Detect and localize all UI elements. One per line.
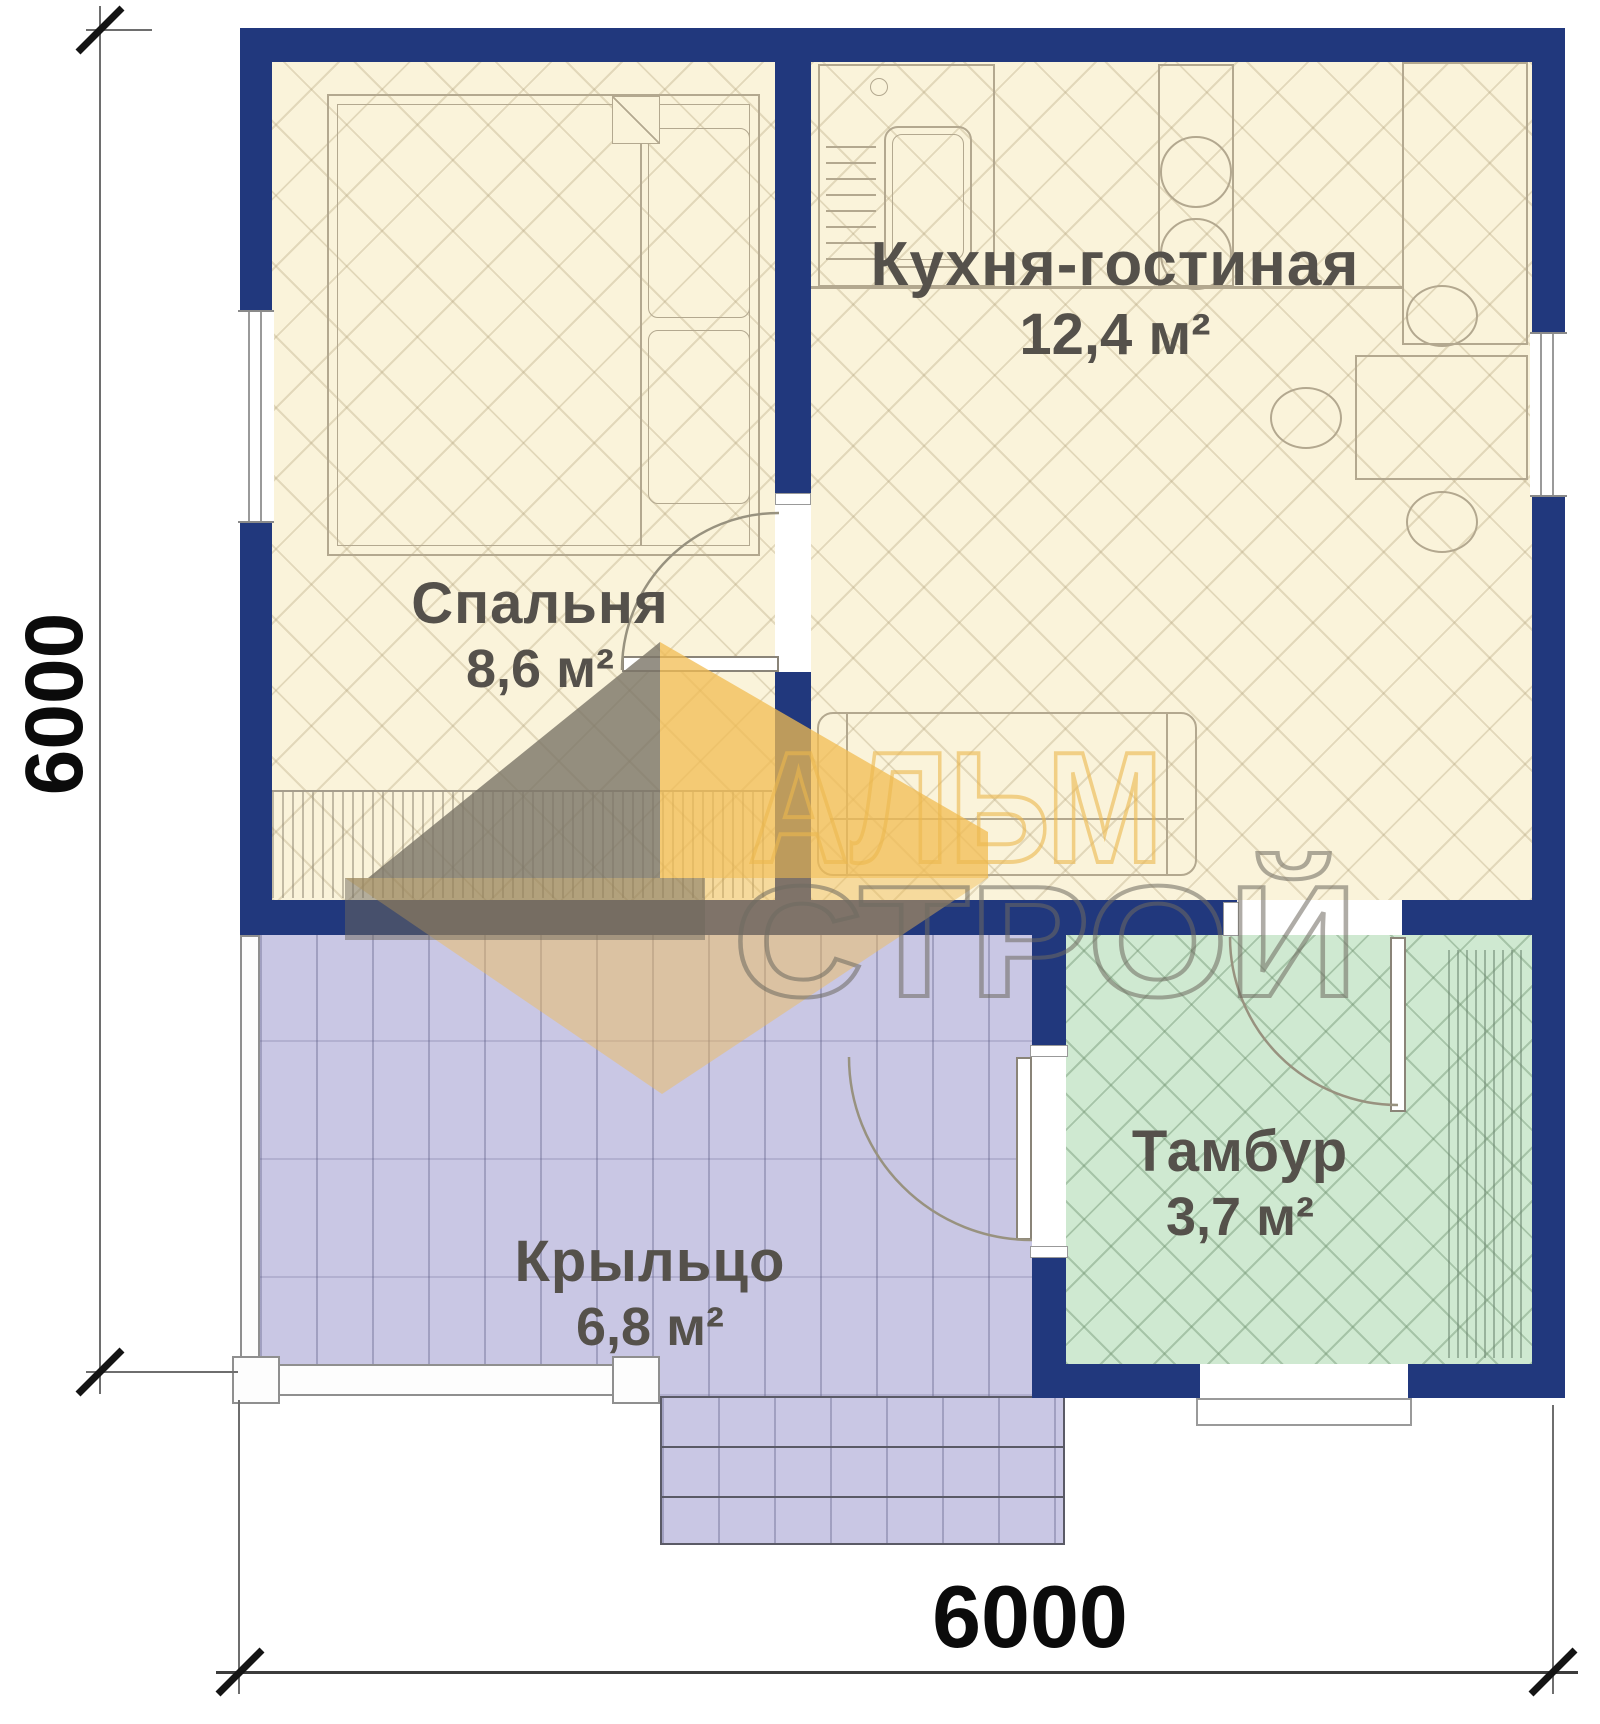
dimension-ext — [86, 1371, 238, 1373]
wall-interior-lower — [775, 672, 811, 900]
sofa-seat-line — [830, 818, 1184, 820]
dimension-height: 6000 — [8, 606, 92, 802]
dimension-ext — [86, 29, 152, 31]
bed-pillow — [648, 330, 750, 504]
kitchen-area: 12,4 м² — [810, 301, 1420, 369]
dimension-ext — [1552, 1405, 1554, 1694]
dimension-line-horizontal — [216, 1671, 1578, 1674]
bedroom-name: Спальня — [300, 570, 780, 638]
bed-divider — [640, 104, 642, 546]
dimension-width: 6000 — [880, 1566, 1180, 1668]
sofa-armrest — [1166, 714, 1168, 874]
kitchen-label: Кухня-гостиная 12,4 м² — [810, 228, 1420, 370]
wall-right-lower — [1532, 497, 1565, 1398]
door-jamb — [1223, 902, 1239, 936]
entrance-steps — [660, 1396, 1065, 1545]
door-jamb — [775, 493, 811, 505]
tambour-door-leaf — [1390, 937, 1406, 1112]
window-bedroom — [238, 310, 274, 523]
porch-area: 6,8 м² — [410, 1296, 890, 1360]
wall-bottom-main — [240, 900, 1237, 935]
bedroom-area: 8,6 м² — [300, 638, 780, 702]
wall-right-upper — [1532, 28, 1565, 332]
porch-post — [612, 1356, 660, 1404]
stove-burner — [1160, 136, 1232, 208]
porch-wall-left — [240, 935, 260, 1364]
dining-table — [1355, 355, 1528, 480]
wall-tambour-bottom-left — [1032, 1364, 1200, 1398]
tambour-area: 3,7 м² — [1010, 1186, 1470, 1250]
entrance-threshold — [1196, 1398, 1412, 1426]
faucet-icon — [870, 78, 888, 96]
porch-post — [232, 1356, 280, 1404]
dimension-ext — [238, 1400, 240, 1694]
door-jamb — [1030, 1045, 1068, 1057]
sofa — [817, 712, 1197, 876]
porch-label: Крыльцо 6,8 м² — [410, 1228, 890, 1360]
wall-top — [240, 28, 1565, 62]
bed-blanket-fold — [612, 96, 660, 144]
bed-pillow — [648, 128, 750, 318]
wall-interior-upper — [775, 62, 811, 505]
wall-bottom-right — [1402, 900, 1565, 935]
chair — [1406, 491, 1478, 553]
sofa-armrest — [846, 714, 848, 874]
wall-left-lower — [240, 523, 272, 935]
window-kitchen — [1530, 332, 1567, 497]
step-line — [660, 1446, 1065, 1448]
floor-plan-canvas: 6000 6000 АЛЬМ СТРОЙ Кухня-гостиная 12,4… — [0, 0, 1600, 1724]
wall-left-upper — [240, 28, 272, 310]
bedroom-label: Спальня 8,6 м² — [300, 570, 780, 702]
wall-tambour-left-upper — [1032, 935, 1066, 1057]
bedroom-radiator — [272, 790, 772, 898]
kitchen-name: Кухня-гостиная — [810, 228, 1420, 301]
chair — [1270, 387, 1342, 449]
tambour-name: Тамбур — [1010, 1118, 1470, 1186]
porch-name: Крыльцо — [410, 1228, 890, 1296]
step-line — [660, 1496, 1065, 1498]
tambour-label: Тамбур 3,7 м² — [1010, 1118, 1470, 1250]
wall-tambour-bottom-right — [1408, 1364, 1565, 1398]
porch-rail — [240, 1364, 620, 1396]
